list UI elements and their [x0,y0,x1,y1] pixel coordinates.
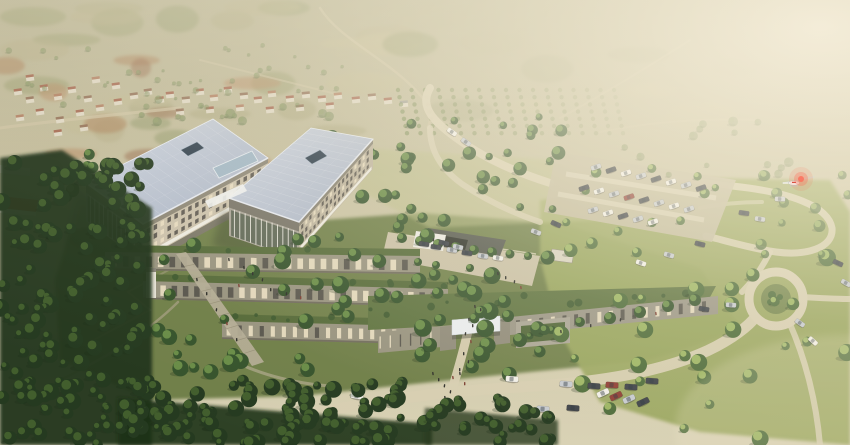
layer-haze [0,0,850,445]
red-flare-halo [789,167,813,191]
distance-fade [0,0,850,150]
scene-svg [0,0,850,445]
aerial-rendering-canvas [0,0,850,445]
